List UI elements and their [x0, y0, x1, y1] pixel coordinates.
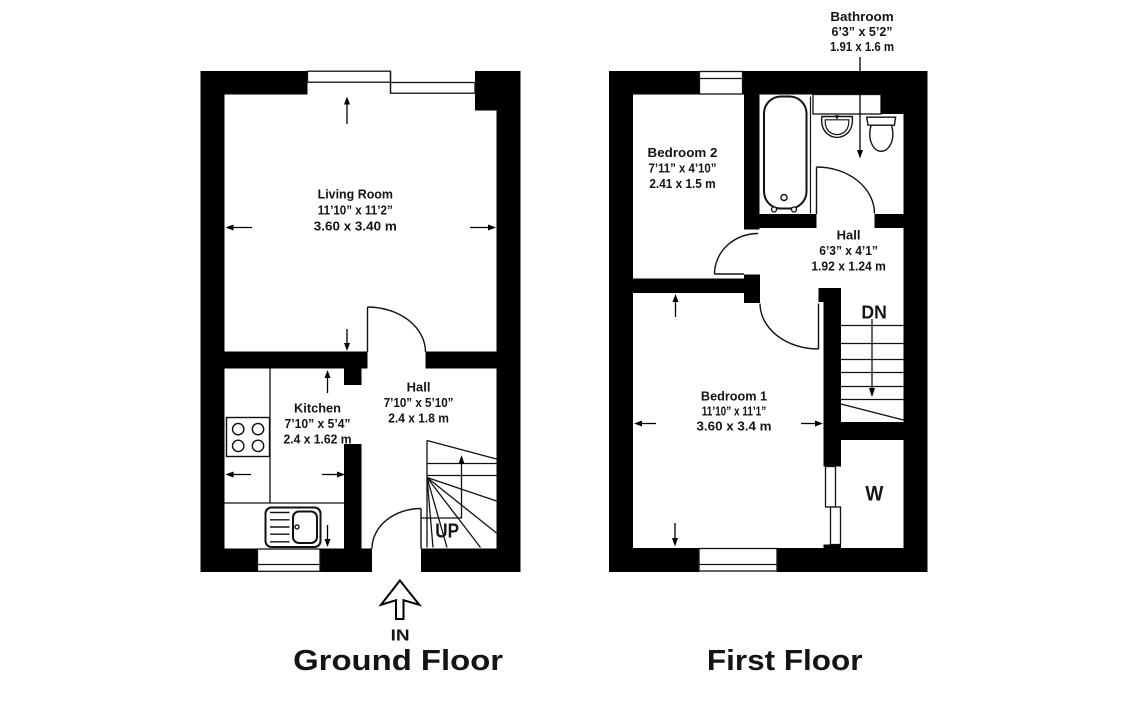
svg-text:2.4 x 1.62 m: 2.4 x 1.62 m — [284, 432, 352, 446]
svg-text:2.4 x 1.8 m: 2.4 x 1.8 m — [388, 412, 449, 426]
svg-text:DN: DN — [861, 302, 886, 322]
svg-text:IN: IN — [391, 628, 410, 645]
svg-text:1.91 x 1.6 m: 1.91 x 1.6 m — [830, 40, 894, 54]
svg-text:UP: UP — [435, 521, 459, 543]
svg-text:7’11” x 4’10”: 7’11” x 4’10” — [649, 161, 717, 175]
svg-text:W: W — [865, 483, 883, 506]
svg-text:Bedroom 2: Bedroom 2 — [648, 146, 718, 160]
svg-text:6’3” x 5’2”: 6’3” x 5’2” — [831, 25, 892, 39]
svg-text:2.41 x 1.5 m: 2.41 x 1.5 m — [649, 177, 715, 191]
svg-text:Kitchen: Kitchen — [294, 401, 341, 415]
svg-text:7’10” x 5’4”: 7’10” x 5’4” — [285, 417, 351, 431]
svg-text:Living Room: Living Room — [318, 188, 393, 202]
svg-text:3.60 x 3.4 m: 3.60 x 3.4 m — [697, 420, 772, 434]
svg-text:1.92 x 1.24 m: 1.92 x 1.24 m — [811, 259, 886, 273]
svg-text:Bedroom 1: Bedroom 1 — [701, 390, 767, 404]
svg-text:First Floor: First Floor — [707, 645, 863, 677]
svg-text:Hall: Hall — [407, 381, 431, 395]
svg-text:Hall: Hall — [837, 229, 861, 243]
svg-text:11’10” x 11’1”: 11’10” x 11’1” — [702, 405, 767, 419]
svg-text:3.60 x 3.40 m: 3.60 x 3.40 m — [314, 219, 397, 233]
svg-text:6’3” x 4’1”: 6’3” x 4’1” — [819, 244, 878, 258]
svg-text:11’10” x 11’2”: 11’10” x 11’2” — [318, 203, 393, 217]
svg-text:7’10” x 5’10”: 7’10” x 5’10” — [384, 396, 454, 410]
svg-text:Ground Floor: Ground Floor — [293, 645, 503, 677]
svg-text:Bathroom: Bathroom — [830, 10, 893, 24]
